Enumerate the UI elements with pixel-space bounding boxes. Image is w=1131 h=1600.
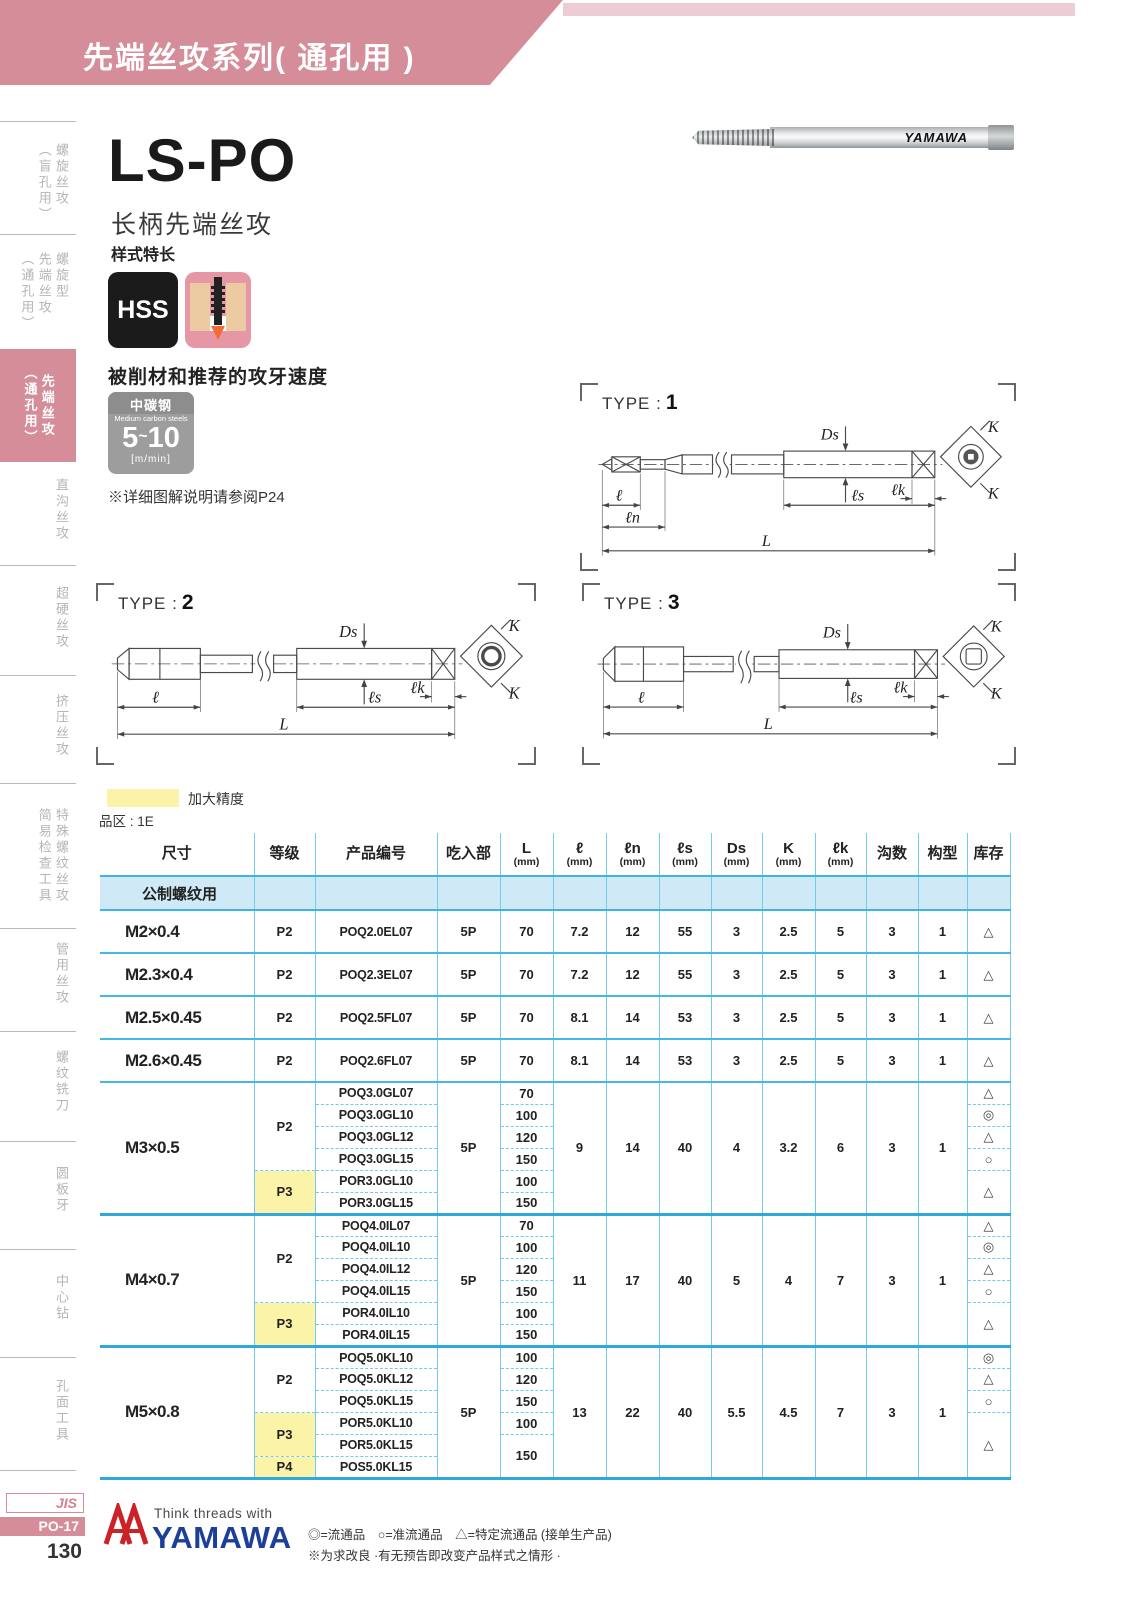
diagram-type-3: TYPE :3 Ds ℓ ℓs ℓk L xyxy=(582,583,1016,765)
sidebar-item-spiral-blind[interactable]: 螺旋丝攻 （盲孔用） xyxy=(0,143,74,219)
tap-brand-marking: YAMAWA xyxy=(904,130,968,145)
col-L: L(mm) xyxy=(500,833,553,876)
tap-dimension-drawing: Ds ℓ ℓs ℓk L K K xyxy=(590,613,1010,761)
workpiece-right xyxy=(226,283,246,331)
sidebar-item-carbide[interactable]: 超硬丝攻 xyxy=(0,586,74,662)
sidebar-item-pipe-tap[interactable]: 管用丝攻 xyxy=(0,942,74,1018)
product-model: LS-PO xyxy=(108,126,296,195)
sidebar-item-center-drill[interactable]: 中心钻 xyxy=(0,1274,74,1338)
tap-product-photo: YAMAWA xyxy=(692,124,1014,154)
sidebar-item-forming[interactable]: 挤压丝攻 xyxy=(0,694,74,770)
svg-text:ℓs: ℓs xyxy=(851,488,864,505)
bracket-corner xyxy=(998,383,1016,401)
speed-box: 中碳钢 Medium carbon steels 5~10 [m/min] xyxy=(108,392,194,474)
col-chamfer: 吃入部 xyxy=(437,833,500,876)
speed-range: 5~10 xyxy=(108,424,194,453)
svg-text:ℓs: ℓs xyxy=(850,688,863,706)
jis-standard-badge: JIS xyxy=(6,1493,84,1513)
sidebar-item-label: 管用丝攻 xyxy=(54,942,68,1018)
sidebar-item-straight-flute[interactable]: 直沟丝攻 xyxy=(0,478,74,554)
enlarged-tolerance-label: 加大精度 xyxy=(188,789,244,809)
col-l: ℓ(mm) xyxy=(553,833,606,876)
sidebar-divider xyxy=(0,1031,76,1032)
sidebar-item-label: 中心钻 xyxy=(54,1274,68,1338)
col-grade: 等级 xyxy=(254,833,315,876)
tap-dimension-drawing: Ds ℓ ℓs ℓk L K K xyxy=(104,613,528,761)
speed-unit: [m/min] xyxy=(108,454,194,465)
sidebar-item-label: 先端丝攻 xyxy=(40,374,54,438)
enlarged-tolerance-swatch xyxy=(107,789,179,807)
stock-symbol-legend: ◎=流通品 ○=准流通品 △=特定流通品 (接单生产品) xyxy=(308,1524,612,1543)
page-banner-title: 先端丝攻系列( 通孔用 ) xyxy=(83,33,416,77)
svg-text:ℓk: ℓk xyxy=(410,678,425,697)
table-row: M2.3×0.4P2 POQ2.3EL075P 707.212 5532.5 5… xyxy=(100,953,1010,996)
sidebar-item-label: 圆板牙 xyxy=(54,1166,68,1230)
table-row: M4×0.7 P2 POQ4.0IL07 5P 70 11 17 40 5 4 … xyxy=(100,1214,1010,1236)
material-name-cn: 中碳钢 xyxy=(108,392,194,414)
sidebar-item-label: （盲孔用） xyxy=(36,143,50,219)
sidebar-item-label: 螺旋型 xyxy=(54,252,68,332)
bracket-corner xyxy=(518,583,536,601)
sidebar-item-spiral-point-through[interactable]: 螺旋型 先端丝攻 （通孔用） xyxy=(0,252,74,332)
svg-text:ℓs: ℓs xyxy=(368,687,381,706)
sidebar-item-label: 挤压丝攻 xyxy=(54,694,68,770)
svg-text:K: K xyxy=(990,684,1003,702)
sidebar-divider xyxy=(0,1470,76,1471)
hss-badge: HSS xyxy=(108,272,178,348)
diagram-type-2: TYPE :2 Ds ℓ ℓs ℓk L xyxy=(96,583,536,765)
col-flutes: 沟数 xyxy=(866,833,918,876)
diagram-type-1: TYPE :1 Ds ℓ ℓn ℓs ℓk xyxy=(580,383,1016,571)
series-zone-note: 品区 : 1E xyxy=(99,810,154,830)
sidebar-item-label: 直沟丝攻 xyxy=(54,478,68,554)
svg-text:K: K xyxy=(987,419,1000,436)
through-hole-icon xyxy=(185,272,251,348)
brand-tagline: Think threads with xyxy=(154,1506,273,1521)
sidebar-item-label: （通孔用） xyxy=(19,252,33,332)
sidebar-divider xyxy=(0,783,76,784)
tap-thread-silhouette xyxy=(211,286,225,316)
col-code: 产品编号 xyxy=(315,833,437,876)
svg-text:L: L xyxy=(278,714,288,733)
speed-section-title: 被削材和推荐的攻牙速度 xyxy=(108,362,328,389)
svg-text:K: K xyxy=(987,486,1000,503)
col-stock: 库存 xyxy=(967,833,1010,876)
svg-text:ℓ: ℓ xyxy=(152,687,159,706)
reference-note: ※详细图解说明请参阅P24 xyxy=(108,486,285,507)
col-size: 尺寸 xyxy=(100,833,254,876)
svg-text:K: K xyxy=(508,684,521,703)
sidebar-item-label: 特殊螺纹丝攻 xyxy=(54,808,68,918)
page-number: 130 xyxy=(0,1540,82,1564)
sidebar-divider xyxy=(0,565,76,566)
sidebar-item-label: 孔面工具 xyxy=(54,1379,68,1455)
col-ls: ℓs(mm) xyxy=(659,833,711,876)
svg-text:Ds: Ds xyxy=(820,427,839,444)
type-label: TYPE :3 xyxy=(604,591,681,615)
svg-text:ℓk: ℓk xyxy=(894,679,909,697)
sidebar-item-point-through-active[interactable]: 先端丝攻 （通孔用） xyxy=(0,349,76,462)
sidebar-item-label: 螺旋丝攻 xyxy=(54,143,68,219)
sidebar-item-special-thread-tools[interactable]: 特殊螺纹丝攻 简易检查工具 xyxy=(0,808,74,918)
col-form: 构型 xyxy=(918,833,967,876)
svg-text:ℓn: ℓn xyxy=(625,509,640,526)
svg-text:Ds: Ds xyxy=(822,623,841,641)
bracket-corner xyxy=(998,583,1016,601)
banner-accent-strip xyxy=(563,3,1075,16)
col-Ds: Ds(mm) xyxy=(711,833,762,876)
type-label: TYPE :2 xyxy=(118,591,195,615)
col-lk: ℓk(mm) xyxy=(815,833,866,876)
svg-text:ℓ: ℓ xyxy=(616,488,623,505)
sidebar-divider xyxy=(0,1141,76,1142)
sidebar-item-label: 螺纹铣刀 xyxy=(54,1050,68,1128)
table-row: M2.5×0.45P2 POQ2.5FL075P 708.114 5332.5 … xyxy=(100,996,1010,1039)
sidebar-item-thread-mill[interactable]: 螺纹铣刀 xyxy=(0,1050,74,1128)
bracket-corner xyxy=(96,583,114,601)
svg-text:K: K xyxy=(990,618,1003,636)
workpiece-left xyxy=(190,283,210,331)
style-feature-label: 样式特长 xyxy=(111,241,175,265)
table-row: M2×0.4P2 POQ2.0EL075P 707.212 5532.5 531… xyxy=(100,910,1010,953)
sidebar-item-label: 简易检查工具 xyxy=(36,808,50,918)
svg-text:Ds: Ds xyxy=(338,622,357,641)
sidebar-divider xyxy=(0,1249,76,1250)
bracket-corner xyxy=(582,583,600,601)
tap-square-end xyxy=(988,125,1014,150)
sidebar-item-label: （通孔用） xyxy=(22,366,36,446)
disclaimer-note: ※为求改良 ·有无预告即改变产品样式之情形 · xyxy=(308,1545,561,1564)
down-arrow-icon xyxy=(211,326,225,340)
bracket-corner xyxy=(580,383,598,401)
col-K: K(mm) xyxy=(762,833,815,876)
sidebar-divider xyxy=(0,928,76,929)
sidebar-item-label: 先端丝攻 xyxy=(36,252,50,332)
sidebar-divider xyxy=(0,1357,76,1358)
svg-text:ℓ: ℓ xyxy=(638,688,645,706)
section-label: 公制螺纹用 xyxy=(100,876,254,910)
table-row: M2.6×0.45P2 POQ2.6FL075P 708.114 5332.5 … xyxy=(100,1039,1010,1082)
section-row-metric: 公制螺纹用 xyxy=(100,876,1010,910)
svg-text:K: K xyxy=(508,616,521,635)
svg-text:L: L xyxy=(761,533,771,550)
sidebar-divider xyxy=(0,121,76,122)
svg-text:ℓk: ℓk xyxy=(891,482,906,499)
sidebar-divider xyxy=(0,675,76,676)
type-label: TYPE :1 xyxy=(602,391,679,415)
tap-dimension-drawing: Ds ℓ ℓn ℓs ℓk L K K xyxy=(588,415,1008,567)
brand-name: YAMAWA xyxy=(152,1520,292,1556)
sidebar-item-hole-tools[interactable]: 孔面工具 xyxy=(0,1379,74,1455)
table-row: M3×0.5 P2 POQ3.0GL07 5P 70 9 14 40 4 3.2… xyxy=(100,1082,1010,1104)
page-code-badge: PO-17 xyxy=(0,1517,85,1536)
product-name: 长柄先端丝攻 xyxy=(111,205,273,241)
sidebar-item-label: 超硬丝攻 xyxy=(54,586,68,662)
spec-table: 尺寸 等级 产品编号 吃入部 L(mm) ℓ(mm) ℓn(mm) ℓs(mm)… xyxy=(100,833,1011,1480)
table-header-row: 尺寸 等级 产品编号 吃入部 L(mm) ℓ(mm) ℓn(mm) ℓs(mm)… xyxy=(100,833,1010,876)
col-ln: ℓn(mm) xyxy=(606,833,659,876)
svg-text:L: L xyxy=(763,715,773,733)
sidebar-item-round-die[interactable]: 圆板牙 xyxy=(0,1166,74,1230)
tap-thread-section xyxy=(692,129,774,146)
table-row: M5×0.8 P2 POQ5.0KL10 5P 100 13 22 40 5.5… xyxy=(100,1346,1010,1368)
yamawa-logo-icon xyxy=(102,1503,150,1547)
sidebar-divider xyxy=(0,234,76,235)
